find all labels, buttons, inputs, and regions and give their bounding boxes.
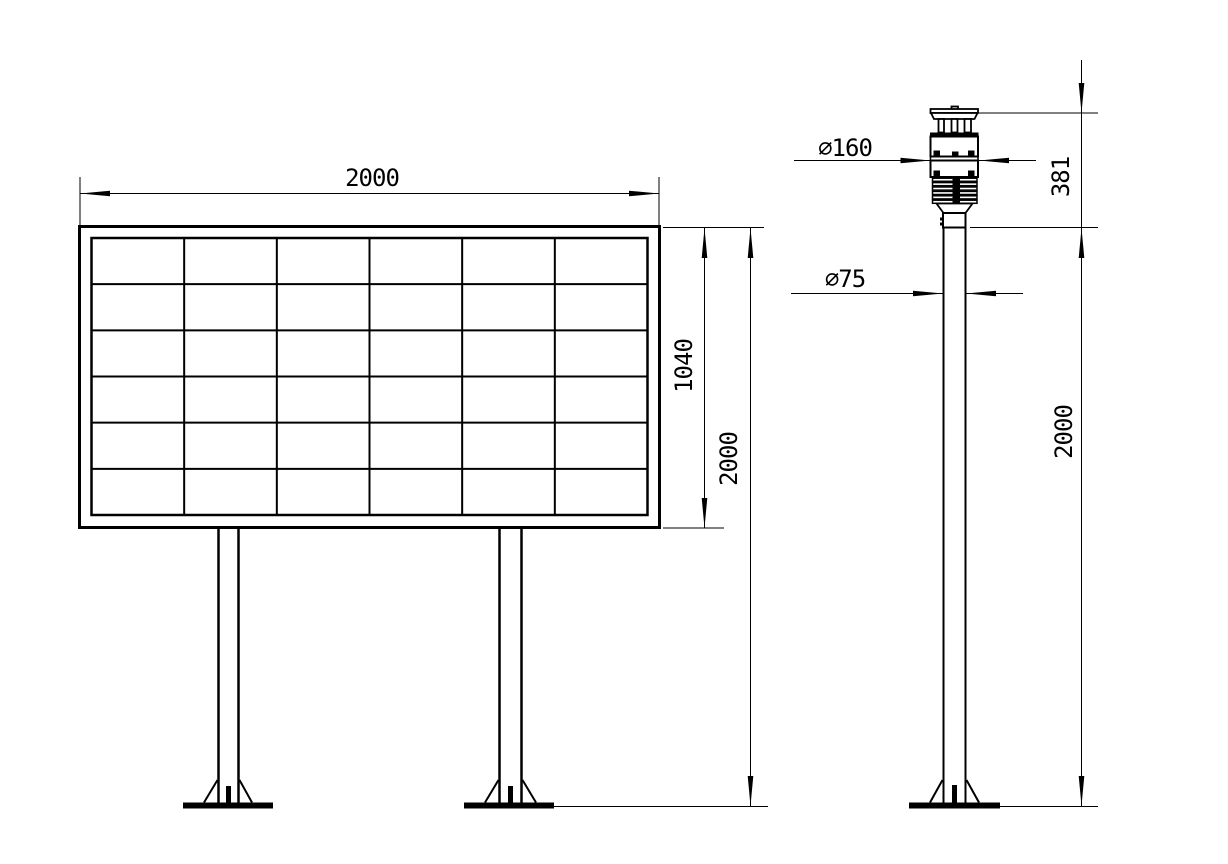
dim-total-height-front: 2000	[715, 228, 753, 806]
clip	[968, 171, 975, 177]
dim-text-pole-diameter: ∅75	[825, 265, 865, 293]
gusset	[240, 780, 253, 803]
front-view: 2000 1040 2000	[80, 164, 769, 809]
dim-text-board-height: 1040	[670, 339, 698, 393]
arrowhead-right-icon	[913, 291, 943, 297]
dim-board-height: 1040	[663, 228, 764, 529]
left-base-plate	[183, 803, 273, 809]
arrowhead-down-icon	[748, 776, 754, 806]
clip	[952, 152, 959, 157]
technical-drawing-canvas: 2000 1040 2000	[0, 0, 1228, 864]
dim-text-board-width: 2000	[345, 164, 399, 192]
arrowhead-right-icon	[629, 191, 659, 197]
pole-connector	[943, 213, 966, 228]
dim-pole-diameter: ∅75	[791, 265, 1023, 296]
gusset	[967, 780, 980, 803]
right-base-plate	[464, 803, 554, 809]
engineering-drawing: 2000 1040 2000	[0, 0, 1228, 864]
weather-sensor-head	[930, 107, 979, 228]
side-view: ∅160 ∅75 381 2000	[791, 60, 1098, 809]
dim-text-sensor-diameter: ∅160	[818, 134, 872, 162]
cap-body	[931, 113, 978, 119]
connector-bolt	[940, 218, 943, 221]
arrowhead-up-icon	[702, 228, 708, 258]
dim-board-width: 2000	[80, 164, 659, 225]
clip	[968, 151, 975, 157]
panel-grid-lines	[92, 238, 648, 515]
display-board	[80, 227, 660, 528]
dim-sensor-and-pole-height: 381 2000	[970, 60, 1098, 806]
sensor-post	[952, 119, 958, 133]
sensor-post	[965, 119, 972, 133]
arrowhead-right-icon	[901, 158, 931, 164]
clip	[934, 171, 941, 177]
mounting-pole	[909, 228, 1098, 809]
radiation-shield-fins	[933, 177, 978, 204]
arrowhead-left-icon	[80, 191, 110, 197]
arrowhead-left-icon	[966, 291, 996, 297]
gusset	[523, 780, 537, 803]
clip	[934, 151, 941, 157]
dim-text-sensor-height: 381	[1047, 157, 1075, 197]
support-legs	[183, 528, 768, 809]
sensor-post	[939, 119, 945, 133]
arrowhead-left-icon	[979, 158, 1009, 164]
arrowhead-down-icon	[702, 498, 708, 528]
dim-text-total-height: 2000	[715, 432, 743, 486]
arrowhead-down-icon	[1079, 83, 1085, 113]
connector-bolt	[940, 223, 943, 226]
base-plate	[909, 803, 1000, 809]
gusset	[930, 780, 943, 803]
dim-sensor-diameter: ∅160	[794, 134, 1036, 163]
sensor-neck	[937, 204, 973, 214]
arrowhead-down-icon	[1079, 776, 1085, 806]
arrowhead-up-icon	[1079, 228, 1085, 258]
gusset	[204, 780, 218, 803]
dim-text-pole-height: 2000	[1050, 405, 1078, 459]
gusset	[485, 780, 499, 803]
arrowhead-up-icon	[748, 228, 754, 258]
